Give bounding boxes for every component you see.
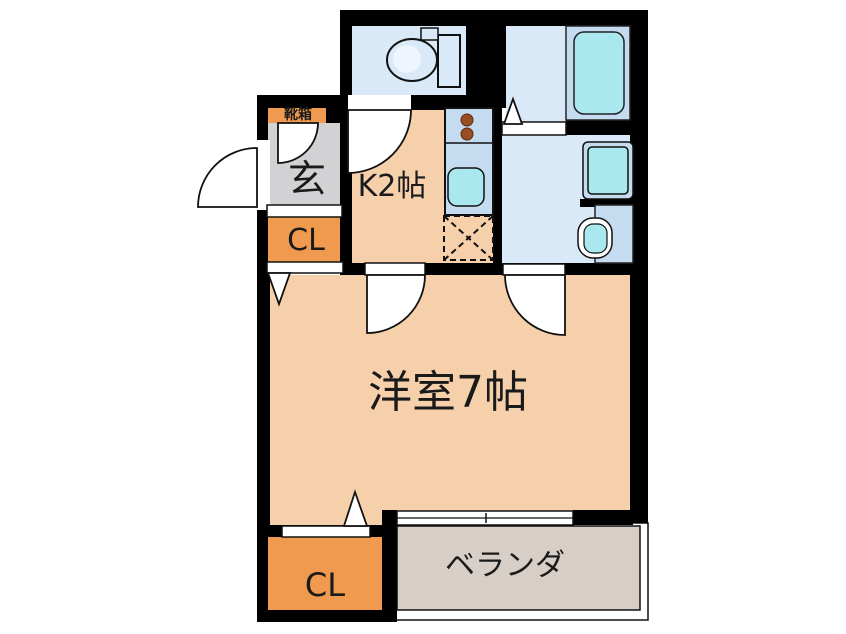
wall-shaft <box>466 10 506 108</box>
entrance-door-arc <box>198 148 257 207</box>
closet-lower-label: CL <box>305 569 345 601</box>
bathtub-basin <box>574 32 624 114</box>
shoe-box-label: 靴箱 <box>284 108 312 122</box>
wall-window-right <box>573 510 633 525</box>
floor-plan-svg <box>0 0 846 634</box>
wall-bath-bottom <box>566 120 630 135</box>
washing-machine-icon <box>583 142 633 199</box>
toilet-flush-button <box>421 28 438 40</box>
sliding-window-icon <box>397 511 573 525</box>
wall-veranda-left <box>382 510 397 622</box>
closet-lower-sill <box>282 526 370 537</box>
floor-plan-image: 靴箱 玄 K2帖 CL 洋室7帖 CL ベランダ <box>0 0 846 634</box>
wall-closet-lower-left <box>257 537 268 622</box>
bathtub-icon <box>566 26 630 120</box>
entrance-label: 玄 <box>288 160 326 198</box>
stove-burner-icon <box>461 114 473 126</box>
main-room-label: 洋室7帖 <box>368 371 528 415</box>
wall-counter-right <box>493 108 502 275</box>
kitchen-door-sill <box>365 263 425 275</box>
entrance-closet-sill <box>267 205 342 217</box>
veranda-label: ベランダ <box>445 551 565 581</box>
closet-upper-sill <box>267 262 343 273</box>
toilet-tank <box>438 35 460 87</box>
kitchen-sink-icon <box>448 168 484 206</box>
wall-left-mid <box>257 275 270 525</box>
wall-bottom <box>257 610 397 622</box>
closet-upper-label: CL <box>287 226 325 256</box>
washer-drum <box>588 147 628 194</box>
basin-water <box>584 224 607 253</box>
kitchen-counter <box>445 108 493 215</box>
washroom-door-sill <box>503 264 565 275</box>
toilet-door-opening <box>348 95 411 110</box>
toilet-bowl-highlight <box>393 45 421 73</box>
kitchen-label: K2帖 <box>358 172 427 202</box>
stove-burner-icon <box>461 128 473 140</box>
